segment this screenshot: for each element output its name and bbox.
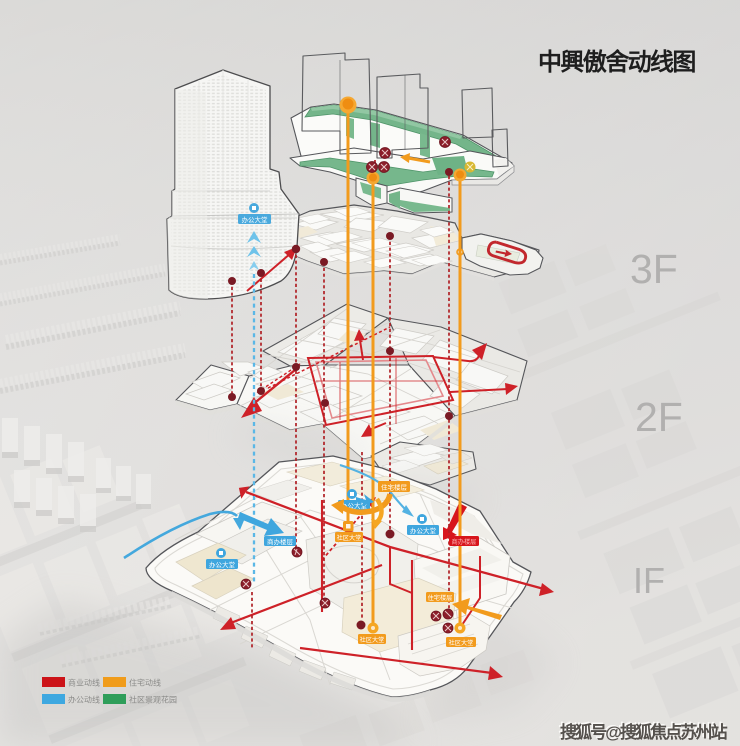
svg-text:办公大堂: 办公大堂 (242, 215, 269, 224)
svg-text:社区大堂: 社区大堂 (360, 636, 385, 644)
svg-text:中興傲舍动线图: 中興傲舍动线图 (538, 48, 695, 76)
svg-text:商办楼层: 商办楼层 (452, 538, 477, 546)
svg-text:IF: IF (633, 560, 665, 601)
svg-text:社区大堂: 社区大堂 (337, 534, 362, 542)
svg-text:商业动线: 商业动线 (68, 678, 100, 688)
svg-text:社区大堂: 社区大堂 (449, 639, 474, 647)
svg-text:住宅楼层: 住宅楼层 (381, 483, 408, 492)
svg-text:搜狐号@搜狐焦点苏州站: 搜狐号@搜狐焦点苏州站 (560, 722, 728, 742)
svg-text:办公动线: 办公动线 (68, 695, 100, 705)
svg-text:2F: 2F (635, 394, 683, 440)
svg-text:办公大堂: 办公大堂 (410, 526, 437, 535)
svg-text:住宅动线: 住宅动线 (129, 678, 161, 688)
svg-text:社区景观花园: 社区景观花园 (129, 695, 177, 705)
svg-text:商办楼层: 商办楼层 (267, 537, 294, 546)
svg-text:3F: 3F (630, 246, 678, 292)
svg-text:住宅楼层: 住宅楼层 (428, 594, 453, 602)
svg-text:办公大堂: 办公大堂 (209, 560, 236, 569)
